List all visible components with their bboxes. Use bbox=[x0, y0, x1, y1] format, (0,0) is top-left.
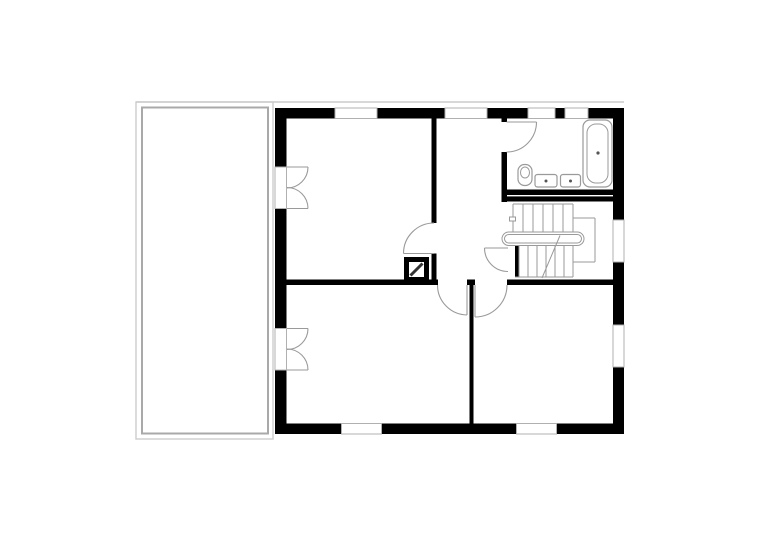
french-door-2-arc-bottom bbox=[287, 349, 308, 370]
wall-interior-room1 bbox=[432, 118, 437, 223]
french-door-opening-1 bbox=[275, 167, 287, 209]
wall-middle-2 bbox=[507, 280, 613, 286]
french-door-1-arc-bottom bbox=[287, 188, 308, 209]
wall-bottom-2 bbox=[382, 424, 517, 435]
room2-door-arc bbox=[438, 285, 468, 315]
wall-right-1 bbox=[613, 108, 624, 220]
stair-wall-bar bbox=[515, 246, 519, 278]
wall-right-2 bbox=[613, 262, 624, 325]
floor-plan-canvas bbox=[0, 0, 780, 551]
window-right-1 bbox=[613, 220, 624, 262]
wall-middle-pier bbox=[467, 280, 475, 286]
wall-bottom-1 bbox=[275, 424, 342, 435]
wall-divider-bottom-rooms bbox=[470, 285, 474, 424]
floor-plan bbox=[0, 0, 780, 551]
room1-door-arc bbox=[404, 223, 435, 254]
terrace-outer bbox=[136, 102, 273, 439]
sink-2-drain bbox=[569, 180, 572, 183]
wall-top-pier bbox=[555, 108, 565, 119]
window-top-1 bbox=[335, 108, 377, 119]
window-bottom-1 bbox=[342, 424, 382, 435]
window-bottom-2 bbox=[517, 424, 557, 435]
french-door-1-arc-top bbox=[287, 167, 308, 188]
wall-bathroom-bottom-gap bbox=[507, 195, 613, 196]
room3-door-arc bbox=[475, 285, 507, 317]
french-door-2-arc-top bbox=[287, 329, 308, 350]
wall-left-2 bbox=[275, 209, 287, 329]
sink-1-drain bbox=[545, 180, 548, 183]
wall-top-3 bbox=[487, 108, 528, 119]
terrace-inner bbox=[142, 108, 268, 434]
bathtub-drain bbox=[596, 151, 599, 154]
window-right-2 bbox=[613, 325, 624, 367]
wall-left-1 bbox=[275, 108, 287, 167]
wall-bottom-3 bbox=[557, 424, 625, 435]
window-top-4 bbox=[565, 108, 588, 119]
window-top-2 bbox=[445, 108, 487, 119]
toilet-body bbox=[518, 165, 532, 186]
wall-top-2 bbox=[377, 108, 445, 119]
wall-bathroom-left-stub bbox=[502, 118, 508, 122]
bathroom-door-arc bbox=[507, 122, 537, 152]
stair-door-arc bbox=[485, 248, 509, 272]
french-door-opening-2 bbox=[275, 329, 287, 371]
window-top-3 bbox=[528, 108, 555, 119]
stair-start-marker bbox=[510, 217, 516, 221]
